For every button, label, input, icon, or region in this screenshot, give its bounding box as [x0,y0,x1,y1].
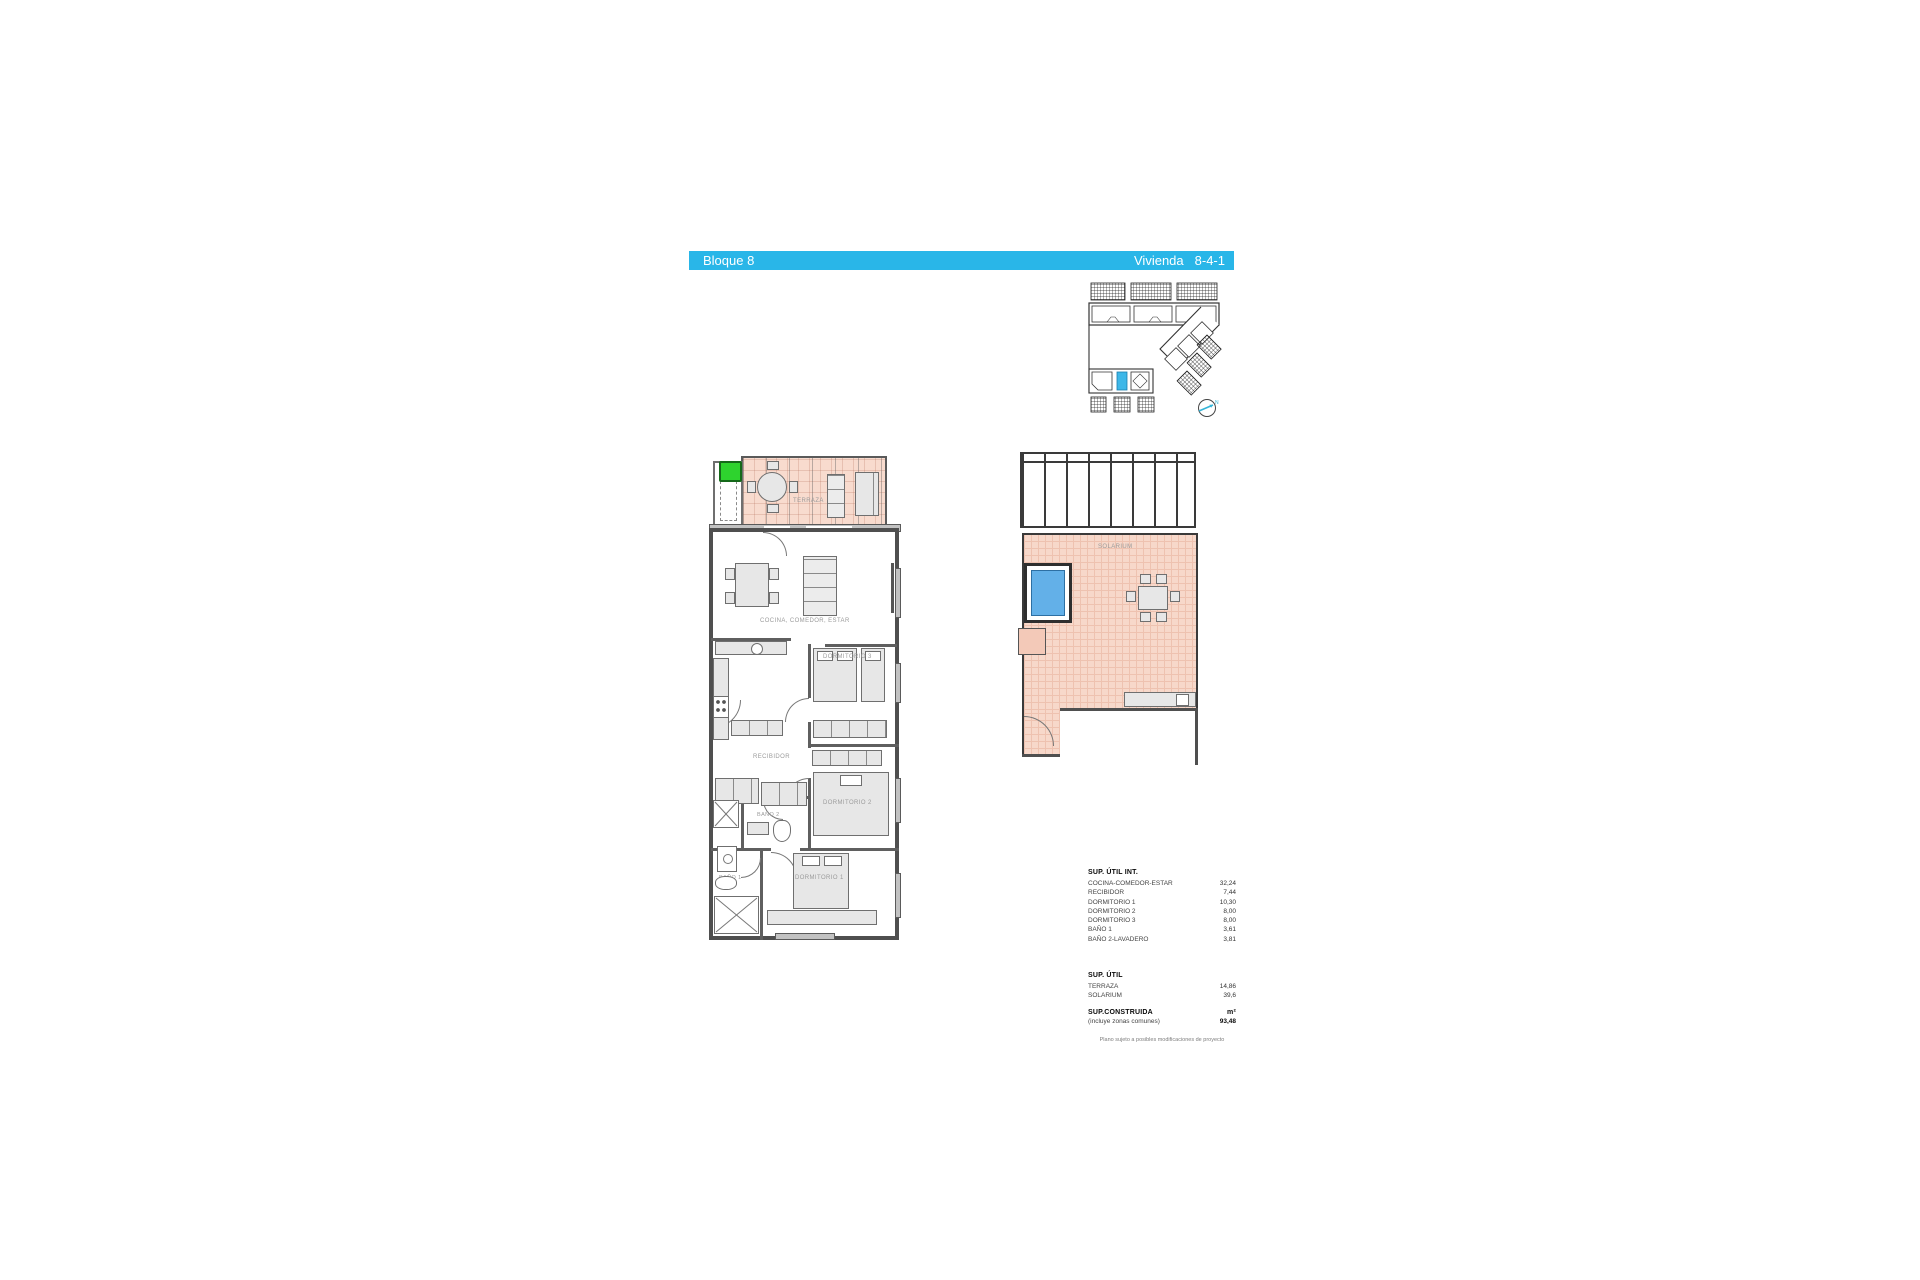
built-area-unit: m² [1227,1008,1236,1017]
pillow [824,856,842,866]
solarium-wall [1195,710,1198,765]
window [895,663,901,703]
area-label: TERRAZA [1088,982,1118,991]
panel-block [1187,353,1211,377]
living-label: COCINA, COMEDOR, ESTAR [760,618,850,624]
sink-bowl [723,854,733,864]
site-plan: N [1085,281,1235,421]
solarium-chair [1156,574,1167,584]
pool-step [1018,628,1046,655]
pillow [840,775,862,786]
shower-icon [714,896,759,934]
apartment-plan: TERRAZA [705,448,905,948]
built-area-note: (incluye zonas comunes) [1088,1017,1160,1026]
panel-block [1114,397,1130,412]
panel-block [1091,397,1106,412]
terrace-armchair [855,472,879,516]
north-compass-icon: N [1199,400,1220,417]
unit-word: Vivienda [1134,253,1184,268]
unit-outline [1092,306,1130,322]
terrace-round-table [757,472,787,502]
solarium-sink [1176,694,1189,706]
area-label: DORMITORIO 1 [1088,898,1136,907]
area-row: TERRAZA 14,86 [1088,982,1236,991]
pool-water [1031,570,1065,616]
solarium-label: SOLARIUM [1098,544,1133,550]
hall-closet [761,782,807,806]
dining-chair [725,592,735,604]
solarium-chair [1140,574,1151,584]
floorplan-page: Bloque 8 Vivienda 8-4-1 [0,0,1920,1280]
partition-wall [800,848,899,851]
site-plan-drawing: N [1085,281,1235,421]
area-label: BAÑO 2-LAVADERO [1088,935,1148,944]
solarium-chair [1126,591,1136,602]
terrace-chair [767,461,779,470]
bedroom1-bench [767,910,877,925]
svg-text:N: N [1215,400,1219,406]
kitchen-counter-bottom [731,720,783,736]
partition-wall [808,744,899,747]
dining-chair [769,592,779,604]
area-value: 3,81 [1223,935,1236,944]
area-value: 39,6 [1223,991,1236,1000]
interior-areas-title: SUP. ÚTIL INT. [1088,869,1236,876]
solarium-chair [1156,612,1167,622]
solarium-table [1138,586,1168,610]
highlighted-unit [1117,372,1127,390]
built-area-title: SUP.CONSTRUIDA [1088,1008,1153,1017]
built-area-header-row: SUP.CONSTRUIDA m² [1088,1008,1236,1017]
green-highlight-box [719,461,742,482]
built-area-row: (incluye zonas comunes) 93,48 [1088,1017,1236,1026]
dorm2-label: DORMITORIO 2 [823,800,872,806]
bath1-toilet [715,876,737,890]
recibidor-label: RECIBIDOR [753,754,790,760]
disclaimer-text: Plano sujeto a posibles modificaciones d… [1088,1037,1236,1043]
washer-icon [713,800,739,828]
area-row: DORMITORIO 2 8,00 [1088,907,1236,916]
solarium-chair [1170,591,1180,602]
terrace-chair [789,481,798,493]
dining-chair [769,568,779,580]
area-value: 8,00 [1223,907,1236,916]
solarium-wall [1022,754,1060,757]
window [895,873,901,918]
unit-outline [1092,372,1112,390]
stove-burners [713,696,729,718]
window [775,933,835,940]
title-bar: Bloque 8 Vivienda 8-4-1 [689,251,1234,270]
area-label: SOLARIUM [1088,991,1122,1000]
area-row: DORMITORIO 3 8,00 [1088,916,1236,925]
wardrobe-dorm2 [812,750,882,766]
terrace-label: TERRAZA [793,498,824,504]
area-row: BAÑO 1 3,61 [1088,925,1236,934]
area-label: COCINA-COMEDOR-ESTAR [1088,879,1173,888]
partition-wall [825,644,897,647]
built-area-value: 93,48 [1220,1017,1236,1026]
area-table: SUP. ÚTIL INT. COCINA-COMEDOR-ESTAR 32,2… [1088,869,1236,1043]
panel-block [1177,283,1217,300]
area-label: DORMITORIO 2 [1088,907,1136,916]
solarium-wall [1060,708,1198,711]
terrace-chair [767,504,779,513]
unit-number: 8-4-1 [1195,253,1225,268]
area-label: DORMITORIO 3 [1088,916,1136,925]
area-row: COCINA-COMEDOR-ESTAR 32,24 [1088,879,1236,888]
bath2-toilet [773,820,791,842]
panel-block [1131,283,1171,300]
pergola-rail [1022,461,1194,463]
window [895,778,901,823]
bath2-sink [747,822,769,835]
wardrobe-dorm3 [813,720,887,738]
terrace-chair [747,481,756,493]
panel-block [1091,283,1125,300]
panel-block [1177,371,1201,395]
area-row: SOLARIUM 39,6 [1088,991,1236,1000]
dorm1-label: DORMITORIO 1 [795,875,844,881]
bath2-label: BAÑO 2 [757,812,780,818]
area-value: 32,24 [1220,879,1236,888]
panel-block [1138,397,1154,412]
pillow [802,856,820,866]
area-value: 7,44 [1223,888,1236,897]
unit-title: Vivienda 8-4-1 [1134,253,1225,268]
unit-outline [1134,306,1172,322]
sofa [803,556,837,616]
partition-wall [808,644,811,698]
tv-unit [891,563,894,613]
area-label: BAÑO 1 [1088,925,1112,934]
terrace-lounger [827,474,845,518]
area-value: 8,00 [1223,916,1236,925]
pergola [1020,452,1196,528]
area-value: 14,86 [1220,982,1236,991]
block-title: Bloque 8 [703,253,754,268]
solarium-plan: SOLARIUM [1014,448,1209,778]
area-row: DORMITORIO 1 10,30 [1088,898,1236,907]
area-value: 3,61 [1223,925,1236,934]
plunge-pool [1024,563,1072,623]
dining-chair [725,568,735,580]
bath1-sink [717,846,737,872]
washer-x [714,801,738,827]
dorm3-label: DORMITORIO 3 [823,654,872,660]
area-row: RECIBIDOR 7,44 [1088,888,1236,897]
area-row: BAÑO 2-LAVADERO 3,81 [1088,935,1236,944]
area-label: RECIBIDOR [1088,888,1124,897]
window [895,568,901,618]
bed-dorm1 [793,853,849,909]
kitchen-sink [751,643,763,655]
closet-dashed-outline [720,481,737,521]
solarium-chair [1140,612,1151,622]
dining-table [735,563,769,607]
partition-wall [760,851,763,940]
area-value: 10,30 [1220,898,1236,907]
shower-x [715,897,758,933]
exterior-areas-title: SUP. ÚTIL [1088,972,1236,979]
